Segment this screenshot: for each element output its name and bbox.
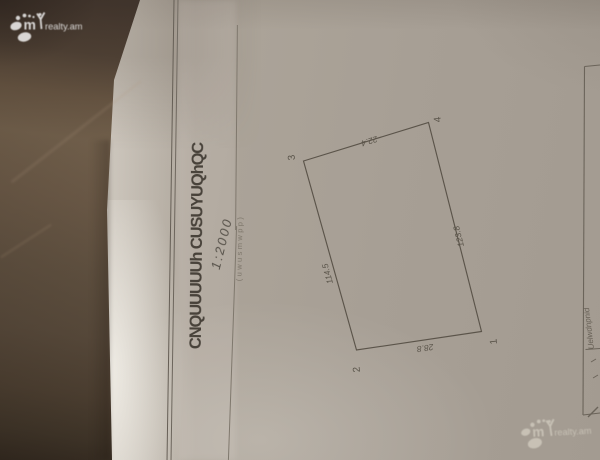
svg-text:123.8: 123.8 <box>451 225 466 248</box>
svg-text:m: m <box>24 17 36 33</box>
svg-text:realty.am: realty.am <box>45 22 83 32</box>
svg-text:3: 3 <box>286 154 298 161</box>
svg-text:1: 1 <box>488 338 500 345</box>
svg-text:28.8: 28.8 <box>416 342 435 354</box>
svg-text:22.4: 22.4 <box>360 134 380 149</box>
svg-text:Uelwdnpnid: Uelwdnpnid <box>582 307 596 350</box>
svg-text:4: 4 <box>432 116 444 123</box>
svg-text:2: 2 <box>351 366 363 373</box>
svg-text:realty.am: realty.am <box>554 426 592 438</box>
svg-text:m: m <box>532 424 545 440</box>
